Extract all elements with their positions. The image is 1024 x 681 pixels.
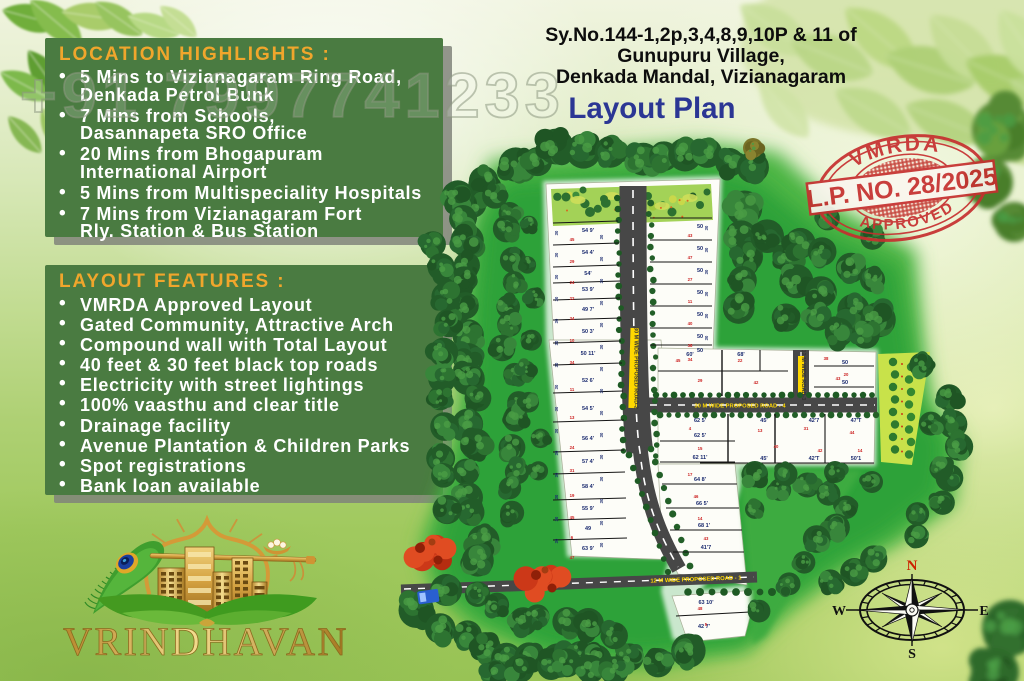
svg-text:30: 30 bbox=[554, 538, 559, 543]
svg-text:49: 49 bbox=[585, 526, 591, 532]
svg-text:30: 30 bbox=[599, 234, 604, 239]
svg-text:30: 30 bbox=[554, 230, 559, 235]
svg-text:30: 30 bbox=[554, 494, 559, 499]
svg-text:30: 30 bbox=[704, 225, 709, 230]
svg-text:50 3': 50 3' bbox=[582, 329, 595, 335]
svg-text:52 6': 52 6' bbox=[582, 378, 595, 384]
svg-text:30: 30 bbox=[599, 432, 604, 437]
svg-text:30: 30 bbox=[599, 256, 604, 261]
svg-text:60': 60' bbox=[686, 352, 694, 358]
svg-text:30: 30 bbox=[554, 274, 559, 279]
svg-text:54 9': 54 9' bbox=[582, 228, 595, 234]
svg-text:N: N bbox=[907, 558, 918, 574]
svg-text:50: 50 bbox=[842, 360, 848, 366]
svg-text:30: 30 bbox=[599, 410, 604, 415]
svg-text:54': 54' bbox=[584, 271, 592, 277]
svg-text:30: 30 bbox=[554, 450, 559, 455]
svg-text:47: 47 bbox=[688, 255, 693, 260]
svg-text:20: 20 bbox=[844, 372, 849, 377]
svg-text:30: 30 bbox=[599, 344, 604, 349]
svg-text:30: 30 bbox=[599, 322, 604, 327]
svg-text:50 11': 50 11' bbox=[581, 351, 596, 357]
svg-text:30: 30 bbox=[554, 472, 559, 477]
svg-text:34: 34 bbox=[570, 360, 575, 365]
svg-text:22: 22 bbox=[570, 296, 575, 301]
svg-text:45: 45 bbox=[570, 515, 575, 520]
svg-text:24: 24 bbox=[570, 445, 575, 450]
svg-text:50: 50 bbox=[697, 334, 703, 340]
svg-text:30 M WIDE PROPOSED ROAD - 4: 30 M WIDE PROPOSED ROAD - 4 bbox=[694, 404, 786, 410]
svg-text:42: 42 bbox=[818, 448, 823, 453]
svg-text:50: 50 bbox=[697, 268, 703, 274]
svg-text:56 4': 56 4' bbox=[582, 436, 595, 442]
svg-text:42'7: 42'7 bbox=[809, 418, 819, 424]
svg-text:43: 43 bbox=[836, 376, 841, 381]
svg-text:48: 48 bbox=[698, 606, 703, 611]
svg-text:30: 30 bbox=[704, 313, 709, 318]
svg-text:30: 30 bbox=[554, 318, 559, 323]
svg-text:30: 30 bbox=[599, 388, 604, 393]
svg-text:50: 50 bbox=[697, 290, 703, 296]
svg-text:38: 38 bbox=[824, 356, 829, 361]
svg-text:11: 11 bbox=[570, 387, 575, 392]
svg-text:19: 19 bbox=[570, 493, 575, 498]
svg-text:47'T: 47'T bbox=[851, 418, 862, 424]
svg-text:30: 30 bbox=[599, 542, 604, 547]
svg-text:54 5': 54 5' bbox=[582, 406, 595, 412]
svg-text:13: 13 bbox=[758, 428, 763, 433]
svg-text:68 1': 68 1' bbox=[698, 523, 711, 529]
svg-text:66 5': 66 5' bbox=[696, 501, 709, 507]
svg-text:14: 14 bbox=[858, 448, 863, 453]
svg-text:58 4': 58 4' bbox=[582, 484, 595, 490]
svg-text:46: 46 bbox=[694, 494, 699, 499]
svg-text:43: 43 bbox=[688, 233, 693, 238]
svg-text:29: 29 bbox=[570, 259, 575, 264]
svg-text:42'T: 42'T bbox=[809, 456, 820, 462]
svg-text:13: 13 bbox=[570, 415, 575, 420]
svg-text:50: 50 bbox=[697, 246, 703, 252]
svg-text:30: 30 bbox=[599, 476, 604, 481]
svg-text:30: 30 bbox=[599, 498, 604, 503]
svg-text:30: 30 bbox=[554, 384, 559, 389]
svg-text:30: 30 bbox=[554, 362, 559, 367]
svg-text:30: 30 bbox=[554, 340, 559, 345]
svg-text:64 8': 64 8' bbox=[694, 477, 707, 483]
svg-text:VRINDHAVAN: VRINDHAVAN bbox=[63, 619, 349, 664]
svg-text:41'7: 41'7 bbox=[701, 545, 711, 551]
svg-text:22: 22 bbox=[738, 358, 743, 363]
svg-text:10: 10 bbox=[570, 338, 575, 343]
svg-text:53 9': 53 9' bbox=[582, 287, 595, 293]
svg-text:40: 40 bbox=[688, 321, 693, 326]
svg-text:62 11': 62 11' bbox=[693, 455, 708, 461]
svg-text:55 9': 55 9' bbox=[582, 506, 595, 512]
svg-text:30: 30 bbox=[704, 291, 709, 296]
svg-text:11: 11 bbox=[688, 299, 693, 304]
svg-text:40: 40 bbox=[774, 444, 779, 449]
svg-text:31: 31 bbox=[804, 426, 809, 431]
svg-text:63 9': 63 9' bbox=[582, 546, 595, 552]
svg-text:30: 30 bbox=[704, 335, 709, 340]
svg-text:45': 45' bbox=[760, 418, 768, 424]
svg-text:62 5': 62 5' bbox=[694, 433, 707, 439]
svg-text:34: 34 bbox=[570, 316, 575, 321]
svg-text:38: 38 bbox=[688, 343, 693, 348]
svg-text:44: 44 bbox=[850, 430, 855, 435]
svg-text:30: 30 bbox=[599, 366, 604, 371]
svg-text:30: 30 bbox=[704, 269, 709, 274]
svg-text:15: 15 bbox=[698, 446, 703, 451]
svg-text:W: W bbox=[832, 604, 846, 619]
svg-text:42: 42 bbox=[754, 380, 759, 385]
svg-text:62 5': 62 5' bbox=[694, 418, 707, 424]
svg-text:14: 14 bbox=[698, 516, 703, 521]
svg-text:30: 30 bbox=[554, 428, 559, 433]
svg-text:27: 27 bbox=[688, 277, 693, 282]
svg-text:24: 24 bbox=[570, 280, 575, 285]
svg-text:49 7': 49 7' bbox=[582, 307, 595, 313]
svg-text:30: 30 bbox=[554, 296, 559, 301]
svg-text:45: 45 bbox=[676, 358, 681, 363]
svg-text:47: 47 bbox=[570, 555, 575, 560]
svg-text:30: 30 bbox=[554, 516, 559, 521]
svg-text:30: 30 bbox=[554, 252, 559, 257]
svg-text:43: 43 bbox=[704, 536, 709, 541]
svg-text:30: 30 bbox=[704, 247, 709, 252]
svg-text:50'1: 50'1 bbox=[851, 456, 861, 462]
svg-text:50: 50 bbox=[697, 312, 703, 318]
svg-text:54 4': 54 4' bbox=[582, 250, 595, 256]
svg-text:30: 30 bbox=[599, 454, 604, 459]
svg-text:50: 50 bbox=[697, 348, 703, 354]
svg-text:45': 45' bbox=[760, 456, 768, 462]
svg-text:45: 45 bbox=[570, 237, 575, 242]
svg-text:50: 50 bbox=[842, 380, 848, 386]
svg-text:31: 31 bbox=[570, 468, 575, 473]
svg-text:17: 17 bbox=[688, 472, 693, 477]
svg-text:50: 50 bbox=[697, 224, 703, 230]
svg-text:57 4': 57 4' bbox=[582, 459, 595, 465]
svg-text:30 M WIDE PROPOSED ROAD-2: 30 M WIDE PROPOSED ROAD-2 bbox=[633, 327, 639, 409]
svg-text:30: 30 bbox=[599, 300, 604, 305]
svg-text:30: 30 bbox=[599, 278, 604, 283]
svg-text:30: 30 bbox=[599, 520, 604, 525]
svg-text:30: 30 bbox=[554, 406, 559, 411]
svg-text:S: S bbox=[908, 647, 916, 662]
svg-text:E: E bbox=[979, 604, 988, 619]
svg-text:29: 29 bbox=[698, 378, 703, 383]
